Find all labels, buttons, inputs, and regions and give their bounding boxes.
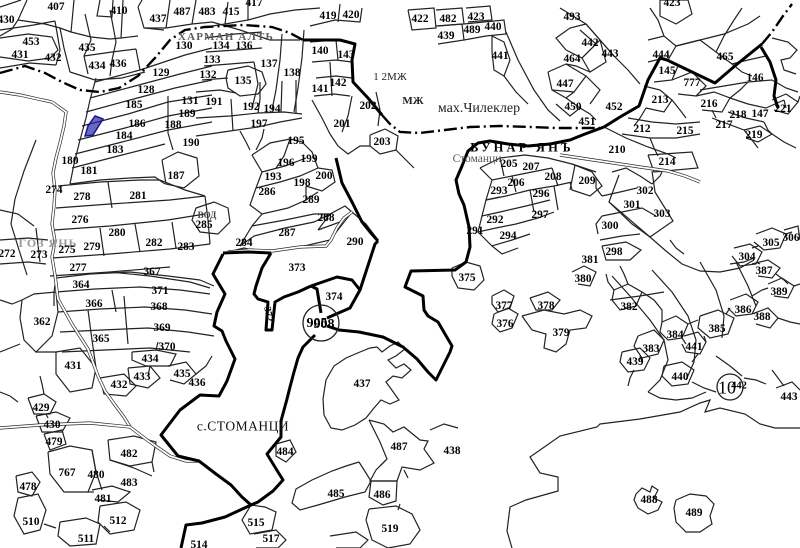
svg-text:279: 279 [84, 241, 101, 253]
svg-text:183: 183 [107, 144, 124, 156]
svg-text:483: 483 [199, 6, 216, 18]
svg-text:274: 274 [46, 184, 63, 196]
svg-text:482: 482 [440, 13, 457, 25]
svg-text:444: 444 [653, 49, 670, 61]
svg-text:431: 431 [12, 49, 29, 61]
svg-text:432: 432 [45, 52, 62, 64]
svg-text:294: 294 [500, 230, 517, 242]
svg-text:438: 438 [444, 445, 461, 457]
svg-text:193: 193 [265, 171, 282, 183]
svg-text:367: 367 [144, 266, 161, 278]
svg-text:296: 296 [533, 188, 550, 200]
svg-text:366: 366 [86, 298, 103, 310]
svg-text:143: 143 [338, 49, 355, 61]
svg-text:434: 434 [142, 353, 159, 365]
svg-text:430: 430 [0, 14, 15, 26]
svg-text:1 2МЖ: 1 2МЖ [373, 71, 407, 83]
svg-text:187: 187 [168, 170, 185, 182]
svg-text:276: 276 [72, 214, 89, 226]
svg-text:273: 273 [31, 249, 48, 261]
svg-text:145: 145 [659, 65, 676, 77]
svg-text:131: 131 [182, 95, 199, 107]
svg-text:140: 140 [312, 45, 329, 57]
svg-text:767: 767 [59, 467, 76, 479]
svg-text:442: 442 [582, 37, 599, 49]
svg-text:303: 303 [654, 208, 671, 220]
svg-text:435: 435 [79, 42, 96, 54]
svg-text:с.СТОМАНЦИ: с.СТОМАНЦИ [197, 419, 289, 434]
svg-text:419: 419 [320, 10, 337, 22]
svg-text:487: 487 [391, 441, 408, 453]
svg-text:184: 184 [116, 130, 133, 142]
svg-text:285: 285 [196, 219, 213, 231]
svg-text:199: 199 [301, 153, 318, 165]
svg-text:298: 298 [606, 246, 623, 258]
svg-text:201: 201 [334, 118, 351, 130]
svg-text:202: 202 [360, 100, 377, 112]
svg-text:293: 293 [491, 185, 508, 197]
svg-text:451: 451 [579, 116, 596, 128]
svg-text:450: 450 [565, 101, 582, 113]
svg-text:197: 197 [251, 118, 268, 130]
svg-text:381: 381 [582, 254, 599, 266]
svg-text:388: 388 [754, 311, 771, 323]
svg-text:515: 515 [248, 517, 265, 529]
svg-text:437: 437 [150, 13, 167, 25]
svg-text:137: 137 [261, 58, 278, 70]
svg-text:434: 434 [89, 60, 106, 72]
svg-text:514: 514 [191, 539, 208, 548]
svg-text:423: 423 [468, 11, 485, 23]
svg-text:203: 203 [374, 136, 391, 148]
svg-text:374: 374 [326, 291, 343, 303]
svg-text:417: 417 [246, 0, 263, 9]
svg-text:488: 488 [641, 494, 658, 506]
svg-text:480: 480 [88, 469, 105, 481]
svg-text:478: 478 [20, 481, 37, 493]
svg-text:365: 365 [93, 333, 110, 345]
svg-text:290: 290 [347, 236, 364, 248]
svg-text:432: 432 [111, 379, 128, 391]
svg-text:141: 141 [312, 83, 329, 95]
svg-text:304: 304 [739, 251, 756, 263]
svg-text:219: 219 [746, 129, 763, 141]
svg-text:305: 305 [763, 237, 780, 249]
svg-text:300: 300 [602, 220, 619, 232]
svg-text:284: 284 [236, 237, 253, 249]
svg-text:136: 136 [236, 40, 253, 52]
svg-text:386: 386 [735, 304, 752, 316]
svg-text:134: 134 [213, 40, 230, 52]
svg-text:292: 292 [487, 214, 504, 226]
svg-text:306: 306 [783, 232, 800, 244]
svg-text:272: 272 [0, 248, 16, 260]
svg-text:453: 453 [23, 36, 40, 48]
svg-text:437: 437 [354, 378, 371, 390]
svg-text:422: 422 [412, 13, 429, 25]
svg-text:297: 297 [532, 209, 549, 221]
svg-text:291: 291 [467, 225, 484, 237]
svg-text:485: 485 [328, 488, 345, 500]
svg-text:371: 371 [152, 285, 169, 297]
svg-text:441: 441 [686, 341, 703, 353]
svg-text:407: 407 [48, 1, 65, 13]
svg-text:282: 282 [146, 237, 163, 249]
svg-text:200: 200 [316, 170, 333, 182]
svg-text:443: 443 [781, 391, 798, 403]
svg-text:198: 198 [294, 177, 311, 189]
svg-text:777: 777 [684, 77, 701, 89]
svg-text:191: 191 [206, 96, 223, 108]
svg-text:447: 447 [557, 78, 574, 90]
svg-text:377: 377 [496, 300, 513, 312]
svg-text:302: 302 [637, 185, 654, 197]
svg-text:512: 512 [110, 515, 127, 527]
svg-text:410: 410 [111, 5, 128, 17]
svg-text:431: 431 [65, 360, 82, 372]
svg-text:196: 196 [278, 157, 295, 169]
svg-text:186: 186 [129, 118, 146, 130]
svg-text:440: 440 [672, 371, 689, 383]
svg-text:465: 465 [717, 51, 734, 63]
svg-text:146: 146 [747, 72, 764, 84]
svg-text:185: 185 [126, 99, 143, 111]
svg-text:443: 443 [602, 48, 619, 60]
svg-text:301: 301 [624, 199, 641, 211]
svg-text:420: 420 [343, 9, 360, 21]
svg-text:142: 142 [330, 77, 347, 89]
svg-text:129: 129 [153, 67, 170, 79]
svg-text:415: 415 [223, 6, 240, 18]
svg-text:МЖ: МЖ [402, 95, 423, 107]
svg-text:288: 288 [318, 212, 335, 224]
svg-text:385: 385 [709, 323, 726, 335]
svg-text:138: 138 [284, 67, 301, 79]
svg-text:287: 287 [279, 227, 296, 239]
svg-text:519: 519 [382, 523, 399, 535]
svg-text:128: 128 [138, 84, 155, 96]
svg-text:192: 192 [243, 101, 260, 113]
svg-text:278: 278 [74, 191, 91, 203]
svg-text:370: 370 [159, 341, 176, 353]
svg-text:442: 442 [731, 381, 747, 392]
svg-text:289: 289 [303, 194, 320, 206]
svg-text:221: 221 [775, 103, 792, 115]
svg-text:275: 275 [59, 244, 76, 256]
svg-text:212: 212 [634, 123, 651, 135]
svg-text:368: 368 [151, 301, 168, 313]
svg-text:489: 489 [686, 507, 703, 519]
svg-text:436: 436 [189, 377, 206, 389]
svg-text:277: 277 [70, 262, 87, 274]
svg-text:484: 484 [277, 446, 294, 458]
svg-text:195: 195 [288, 135, 305, 147]
svg-text:482: 482 [121, 448, 138, 460]
svg-text:510: 510 [23, 516, 40, 528]
svg-text:423: 423 [664, 0, 681, 9]
svg-text:147: 147 [752, 108, 769, 120]
svg-text:281: 281 [130, 190, 147, 202]
svg-text:362: 362 [34, 316, 51, 328]
svg-text:130: 130 [176, 40, 193, 52]
svg-text:387: 387 [756, 265, 773, 277]
svg-text:464: 464 [564, 53, 581, 65]
svg-text:280: 280 [109, 227, 126, 239]
svg-text:433: 433 [134, 371, 151, 383]
svg-text:436: 436 [110, 58, 127, 70]
svg-text:376: 376 [497, 318, 514, 330]
svg-text:373: 373 [289, 262, 306, 274]
svg-text:383: 383 [643, 343, 660, 355]
svg-text:908: 908 [314, 317, 335, 332]
svg-text:489: 489 [464, 24, 481, 36]
svg-text:380: 380 [575, 273, 592, 285]
svg-text:206: 206 [508, 177, 525, 189]
svg-text:439: 439 [438, 30, 455, 42]
svg-text:мах.Чилеклер: мах.Чилеклер [438, 101, 520, 116]
svg-text:190: 190 [183, 137, 200, 149]
svg-text:486: 486 [374, 489, 391, 501]
svg-text:283: 283 [178, 241, 195, 253]
svg-text:216: 216 [701, 98, 718, 110]
svg-text:384: 384 [667, 329, 684, 341]
svg-text:382: 382 [621, 301, 638, 313]
svg-text:213: 213 [652, 94, 669, 106]
svg-text:194: 194 [264, 103, 281, 115]
svg-text:133: 133 [204, 54, 221, 66]
svg-text:429: 429 [33, 402, 50, 414]
svg-text:Стоманци: Стоманци [453, 153, 502, 165]
svg-text:207: 207 [523, 161, 540, 173]
svg-text:364: 364 [73, 279, 90, 291]
svg-text:479: 479 [46, 436, 63, 448]
svg-text:483: 483 [121, 477, 138, 489]
svg-text:132: 132 [200, 69, 217, 81]
svg-text:210: 210 [609, 144, 626, 156]
svg-text:209: 209 [579, 175, 596, 187]
svg-text:511: 511 [78, 533, 95, 545]
svg-text:379: 379 [553, 327, 570, 339]
svg-text:375: 375 [459, 272, 476, 284]
svg-text:205: 205 [501, 158, 518, 170]
svg-text:439: 439 [627, 356, 644, 368]
svg-text:214: 214 [659, 156, 676, 168]
svg-text:378: 378 [538, 300, 555, 312]
svg-text:135: 135 [235, 75, 252, 87]
svg-text:481: 481 [95, 493, 112, 505]
svg-text:440: 440 [485, 21, 502, 33]
svg-text:181: 181 [81, 165, 98, 177]
svg-text:188: 188 [165, 119, 182, 131]
svg-text:517: 517 [263, 533, 280, 545]
svg-text:286: 286 [259, 186, 276, 198]
svg-text:215: 215 [677, 125, 694, 137]
svg-text:430: 430 [44, 419, 61, 431]
svg-text:452: 452 [606, 101, 623, 113]
svg-text:217: 217 [716, 119, 733, 131]
svg-text:389: 389 [771, 286, 788, 298]
svg-text:180: 180 [62, 155, 79, 167]
svg-text:441: 441 [492, 50, 509, 62]
svg-text:487: 487 [174, 6, 191, 18]
svg-text:369: 369 [154, 322, 171, 334]
svg-text:493: 493 [564, 11, 581, 23]
svg-text:208: 208 [545, 171, 562, 183]
